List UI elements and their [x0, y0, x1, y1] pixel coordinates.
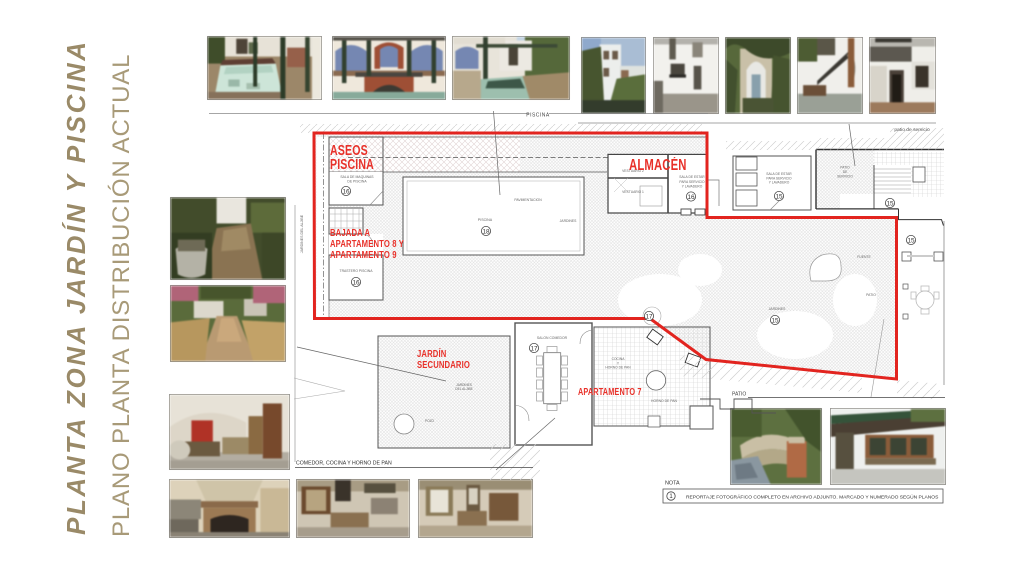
svg-text:SALA DE MAQUINAS: SALA DE MAQUINAS	[340, 175, 374, 179]
svg-text:PATIO: PATIO	[840, 166, 850, 170]
svg-text:DE PISCINA: DE PISCINA	[347, 180, 367, 184]
svg-text:JARDINES: JARDINES	[560, 219, 578, 223]
svg-text:Y LAVADERO: Y LAVADERO	[682, 184, 703, 188]
svg-text:18: 18	[482, 228, 490, 235]
svg-text:17: 17	[645, 313, 653, 320]
svg-text:POZO: POZO	[425, 419, 435, 423]
svg-text:SALON COMEDOR: SALON COMEDOR	[537, 336, 568, 340]
svg-text:PLANO PLANTA DISTRIBUCIÓN ACTU: PLANO PLANTA DISTRIBUCIÓN ACTUAL	[108, 54, 135, 537]
svg-text:PARA SERVICIO: PARA SERVICIO	[679, 180, 705, 184]
svg-text:JARDINES: JARDINES	[769, 307, 787, 311]
svg-text:TRASTERO PISCINA: TRASTERO PISCINA	[340, 269, 374, 273]
svg-text:16: 16	[687, 194, 695, 201]
svg-text:15: 15	[907, 237, 915, 244]
svg-text:REPORTAJE FOTOGRÁFICO COMPLETO: REPORTAJE FOTOGRÁFICO COMPLETO EN ARCHIV…	[686, 493, 939, 500]
svg-text:FUENTE: FUENTE	[857, 255, 871, 259]
svg-text:Y LAVADERO: Y LAVADERO	[769, 181, 790, 185]
svg-text:VESTUARIO 1: VESTUARIO 1	[622, 190, 644, 194]
svg-text:PISCINA: PISCINA	[478, 218, 493, 222]
svg-text:HORNO DE PAN: HORNO DE PAN	[651, 399, 677, 403]
svg-text:SERVICIO: SERVICIO	[837, 175, 853, 179]
svg-text:PISCINA: PISCINA	[526, 113, 550, 119]
svg-text:COMEDOR, COCINA Y HORNO DE PAN: COMEDOR, COCINA Y HORNO DE PAN	[296, 461, 392, 467]
svg-text:15: 15	[775, 193, 783, 200]
svg-text:15: 15	[771, 317, 779, 324]
svg-text:16: 16	[352, 279, 360, 286]
svg-text:PLANTA ZONA JARDÍN Y PISCINA: PLANTA ZONA JARDÍN Y PISCINA	[61, 39, 91, 535]
svg-text:NOTA: NOTA	[665, 481, 680, 487]
svg-text:patio de servicio: patio de servicio	[894, 127, 930, 133]
svg-text:HORNO DE PAN: HORNO DE PAN	[605, 366, 631, 370]
svg-text:15: 15	[886, 200, 894, 207]
svg-text:PATIO: PATIO	[732, 392, 746, 398]
svg-text:SALA DE ESTAR: SALA DE ESTAR	[679, 175, 705, 179]
svg-text:DEL ALJIBE: DEL ALJIBE	[455, 387, 472, 391]
svg-text:PATIO: PATIO	[866, 293, 876, 297]
svg-text:17: 17	[530, 345, 538, 352]
svg-text:JARDINES DEL ALJIBE: JARDINES DEL ALJIBE	[300, 214, 304, 253]
svg-text:PAVIMENTACION: PAVIMENTACION	[514, 198, 542, 202]
svg-text:16: 16	[342, 188, 350, 195]
svg-text:DE: DE	[843, 170, 848, 174]
